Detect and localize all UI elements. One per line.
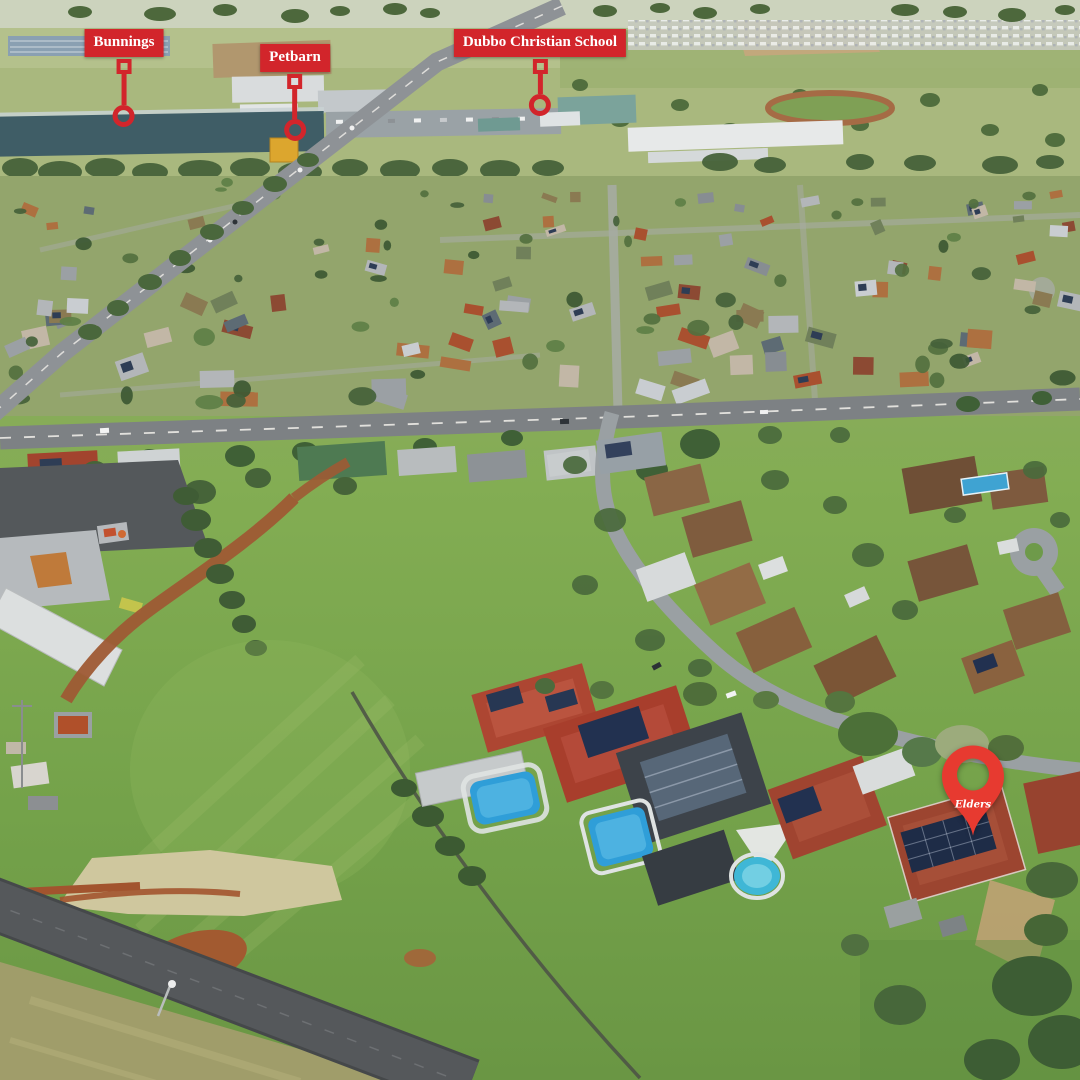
map-marker-dubbo-christian-school: Dubbo Christian School xyxy=(454,29,626,116)
aerial-photo-illustration xyxy=(0,0,1080,1080)
map-label-bunnings: Bunnings xyxy=(85,29,164,57)
marker-stem xyxy=(292,89,297,119)
marker-stem xyxy=(121,74,126,105)
marker-square-connector xyxy=(116,59,131,74)
marker-stem xyxy=(538,74,543,94)
location-pin-icon: Elders xyxy=(942,745,1004,837)
suburb xyxy=(0,176,1080,416)
marker-location-ring xyxy=(284,119,306,141)
map-marker-petbarn: Petbarn xyxy=(260,44,330,141)
marker-location-ring xyxy=(529,94,551,116)
map-label-dubbo-christian-school: Dubbo Christian School xyxy=(454,29,626,57)
pin-brand-text: Elders xyxy=(954,798,992,810)
marker-location-ring xyxy=(113,105,135,127)
map-label-petbarn: Petbarn xyxy=(260,44,330,72)
marker-square-connector xyxy=(287,74,302,89)
elders-location-pin: Elders xyxy=(942,745,1004,842)
marker-square-connector xyxy=(533,59,548,74)
map-marker-bunnings: Bunnings xyxy=(85,29,164,127)
aerial-photo: Bunnings Petbarn Dubbo Christian School … xyxy=(0,0,1080,1080)
